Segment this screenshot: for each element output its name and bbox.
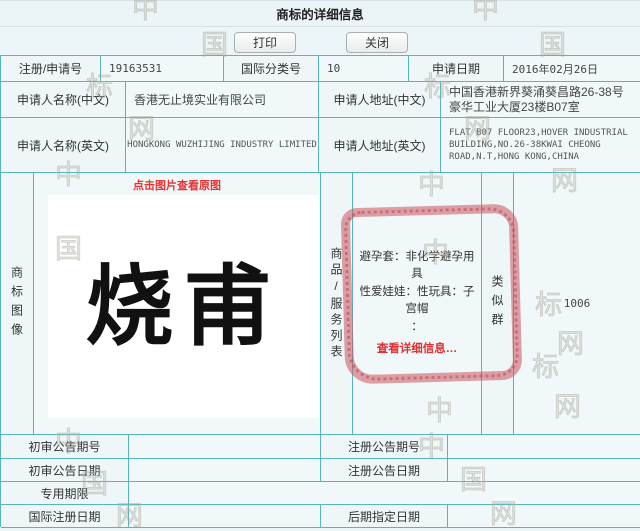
addr-en-text: FLAT B07 FLOOR23,HOVER INDUSTRIAL BUILDI…	[449, 127, 634, 163]
exclusive-period-label: 专用期限	[1, 482, 129, 505]
intl-class-text: 10	[327, 62, 340, 75]
similar-group-value: 1006	[514, 173, 640, 435]
first-trial-no-value	[129, 435, 321, 459]
first-trial-date-label: 初审公告日期	[1, 459, 129, 482]
later-designation-date-value	[448, 505, 640, 528]
first-trial-no-label: 初审公告期号	[1, 435, 129, 459]
intl-class-label: 国际分类号	[224, 56, 319, 82]
goods-line-2: 性爱娃娃：性玩具：子宫帽	[355, 284, 479, 318]
intl-class-value: 10	[319, 56, 409, 82]
similar-group-label: 类似群	[482, 173, 514, 435]
reg-announce-date-label: 注册公告日期	[321, 459, 448, 482]
later-designation-date-label: 后期指定日期	[321, 505, 448, 528]
first-trial-date-value	[129, 459, 321, 482]
view-original-link[interactable]: 点击图片查看原图	[34, 177, 320, 193]
similar-group-number: 1006	[564, 297, 591, 310]
addr-cn-value: 中国香港新界葵涌葵昌路26-38号豪华工业大厦23楼B07室	[441, 82, 640, 118]
intl-reg-date-value	[129, 505, 321, 528]
similar-group-text: 类似群	[489, 275, 506, 332]
page-title: 商标的详细信息	[276, 4, 364, 23]
goods-detail-link[interactable]: 查看详细信息…	[377, 341, 458, 358]
applicant-cn-label: 申请人名称(中文)	[1, 82, 126, 118]
goods-line-1: 避孕套：非化学避孕用具	[355, 249, 479, 283]
addr-en-label: 申请人地址(英文)	[319, 118, 441, 173]
page-title-bar: 商标的详细信息	[0, 0, 640, 27]
goods-col-text: 商品/服务列表	[328, 247, 345, 361]
trademark-image-text: 烧甫	[85, 263, 281, 351]
goods-line-3: ：	[411, 319, 423, 336]
exclusive-period-value	[129, 482, 640, 505]
reg-no-value: 19163531	[101, 56, 224, 82]
app-date-value: 2016年02月26日	[504, 56, 640, 82]
applicant-cn-value: 香港无止境实业有限公司	[126, 82, 319, 118]
intl-reg-date-label: 国际注册日期	[1, 505, 129, 528]
close-button[interactable]: 关闭	[346, 32, 408, 53]
app-date-label: 申请日期	[409, 56, 504, 82]
print-button[interactable]: 打印	[234, 32, 296, 53]
trademark-image[interactable]: 烧甫	[48, 195, 319, 418]
goods-list-cell: 避孕套：非化学避孕用具 性爱娃娃：性玩具：子宫帽 ： 查看详细信息…	[353, 173, 482, 435]
applicant-en-text: HONGKONG WUZHIJING INDUSTRY LIMITED	[127, 140, 317, 150]
addr-cn-label: 申请人地址(中文)	[319, 82, 441, 118]
addr-en-value: FLAT B07 FLOOR23,HOVER INDUSTRIAL BUILDI…	[441, 118, 640, 173]
goods-col-label: 商品/服务列表	[321, 173, 353, 435]
tm-image-col-label: 商标图像	[1, 173, 34, 435]
trademark-detail-page: 商标的详细信息 打印 关闭 注册/申请号 19163531 国际分类号 10 申…	[0, 0, 640, 527]
trademark-detail-table: 注册/申请号 19163531 国际分类号 10 申请日期 2016年02月26…	[0, 55, 640, 527]
reg-no-text: 19163531	[109, 62, 162, 75]
reg-announce-date-value	[448, 459, 640, 482]
toolbar: 打印 关闭	[0, 28, 640, 55]
reg-no-label: 注册/申请号	[1, 56, 101, 82]
applicant-en-label: 申请人名称(英文)	[1, 118, 126, 173]
tm-image-cell: 点击图片查看原图 烧甫	[34, 173, 321, 435]
reg-announce-no-value	[448, 435, 640, 459]
applicant-en-value: HONGKONG WUZHIJING INDUSTRY LIMITED	[126, 118, 319, 173]
reg-announce-no-label: 注册公告期号	[321, 435, 448, 459]
tm-image-col-text: 商标图像	[9, 266, 26, 342]
app-date-text: 2016年02月26日	[512, 61, 598, 77]
